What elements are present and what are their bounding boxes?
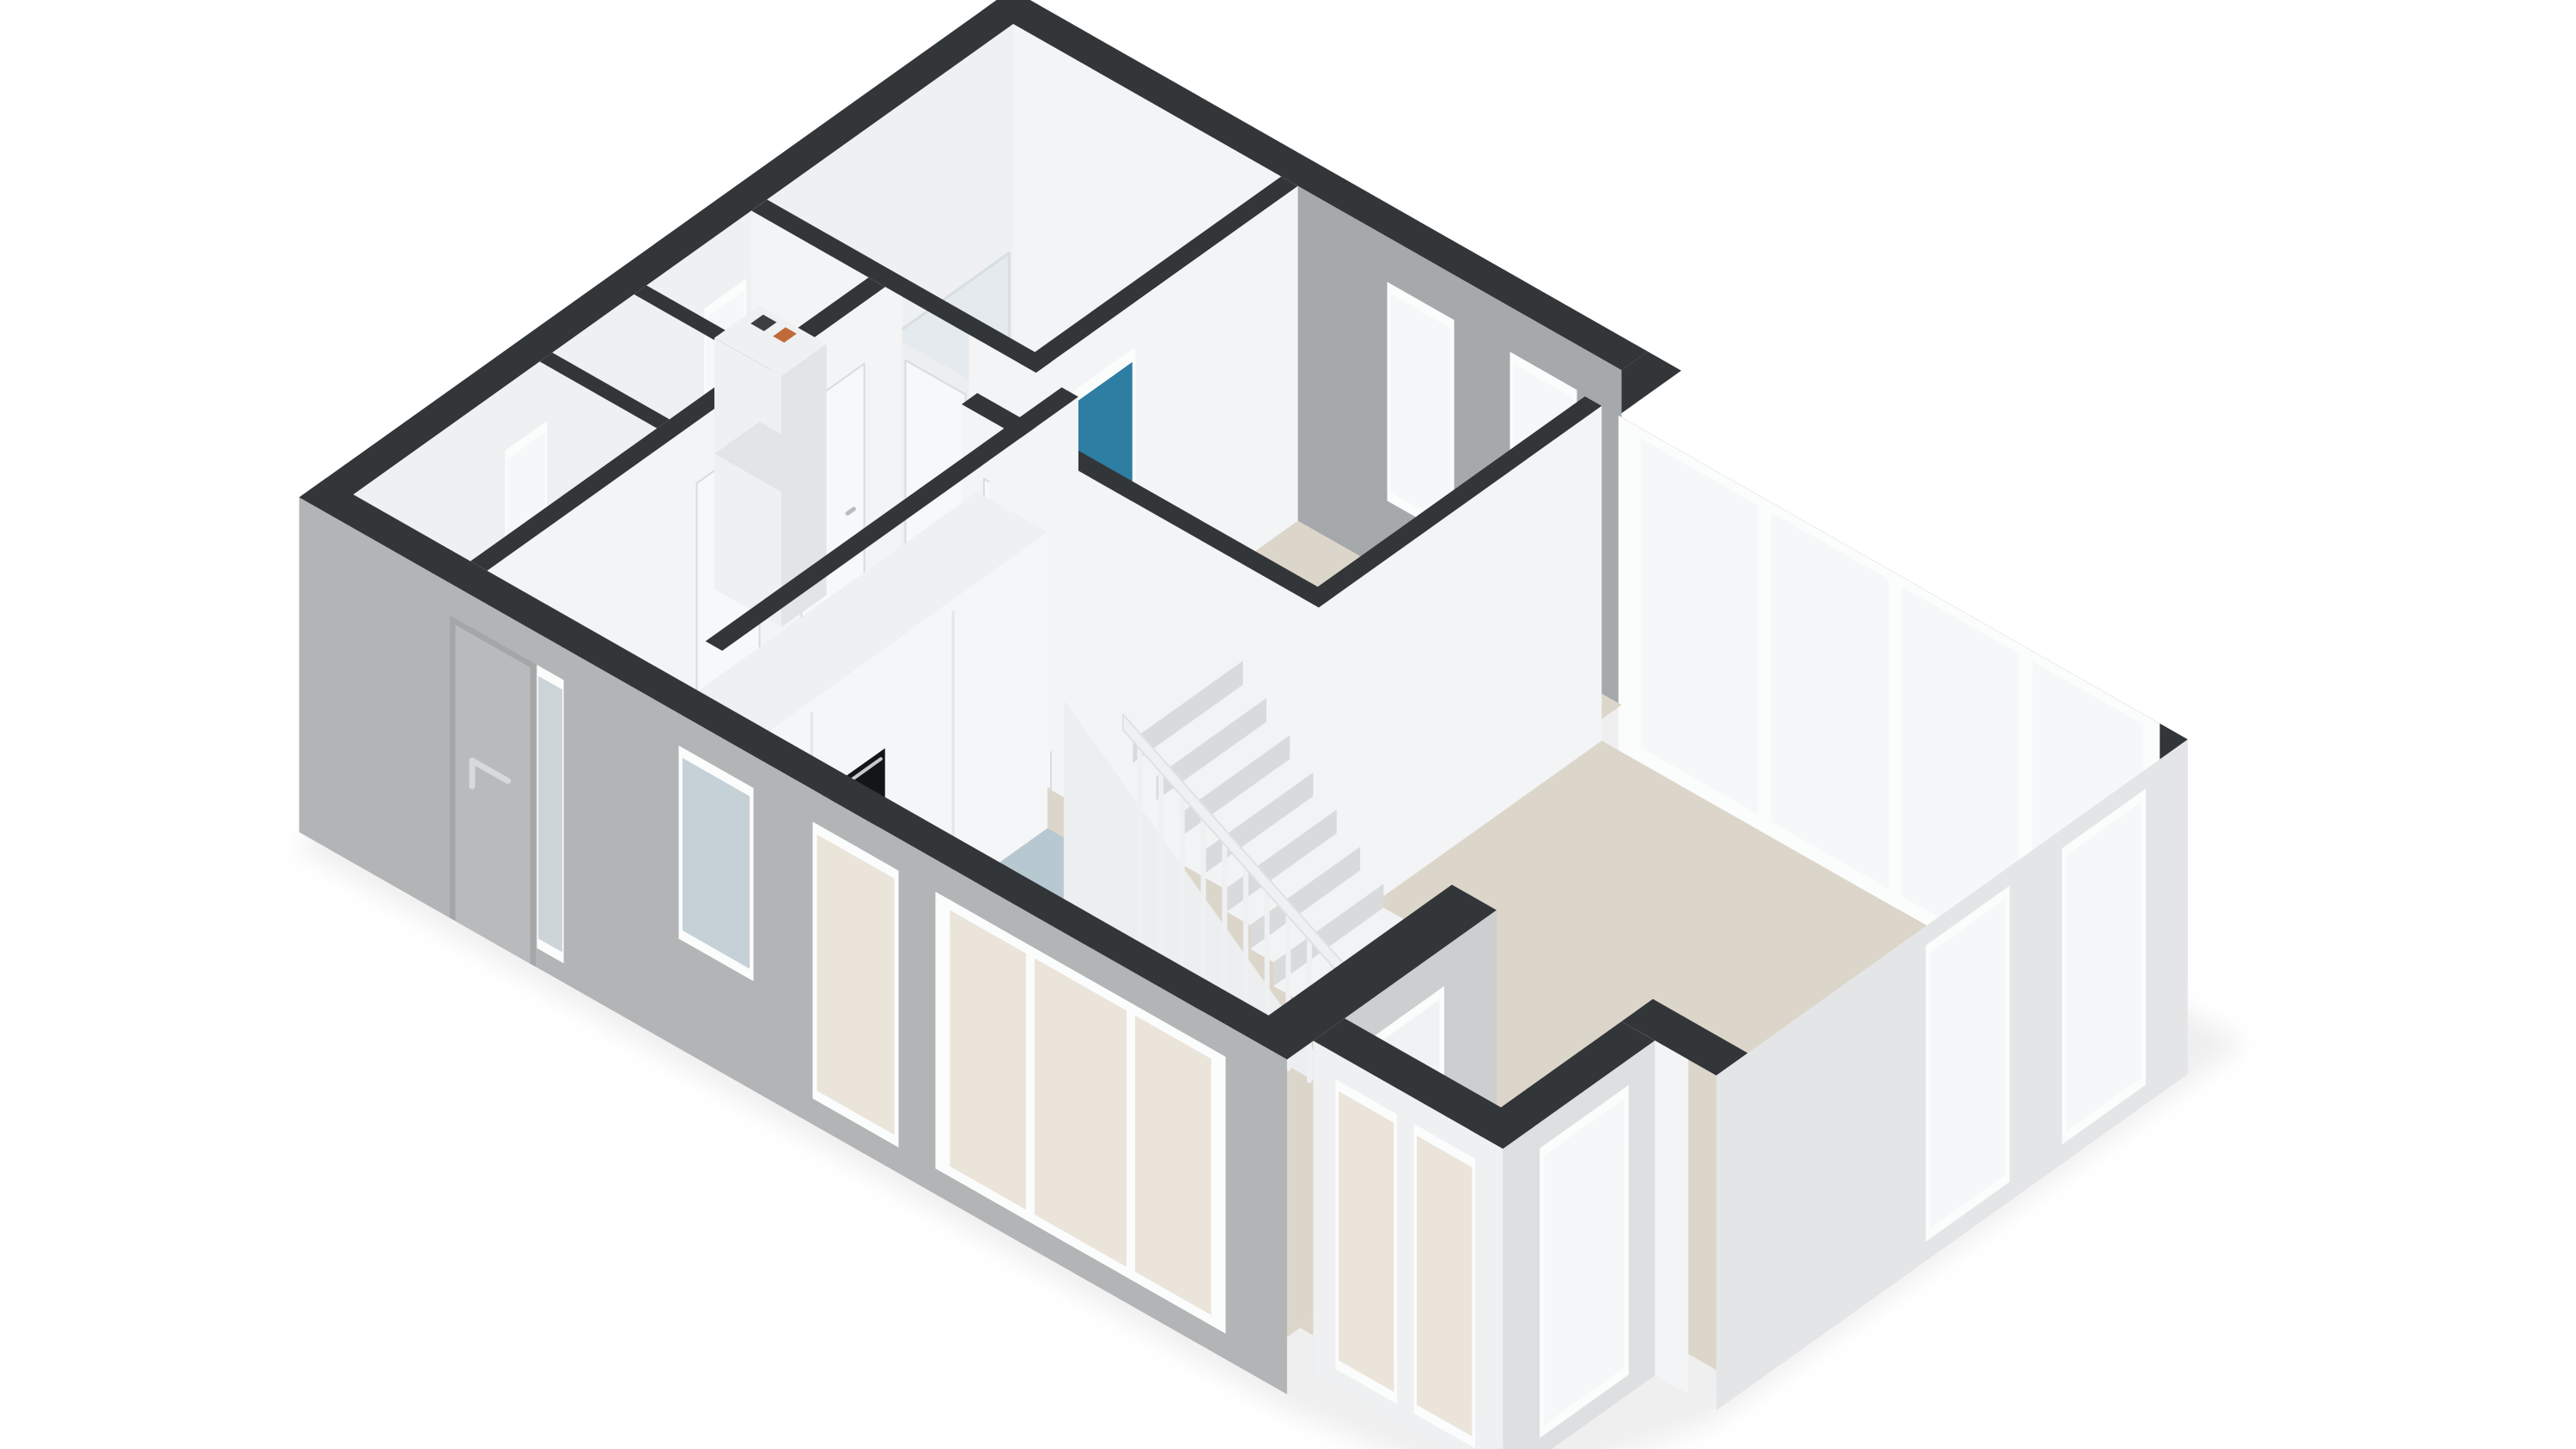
front-door (455, 625, 530, 964)
window-living-east-2-glass (1930, 899, 2006, 1228)
window-bay-south-1-glass (1339, 1091, 1394, 1391)
window-bedroom-1-glass (1390, 294, 1450, 527)
window-living-east-1-glass (2066, 802, 2142, 1131)
window-dining-southwest-1-glass (817, 834, 894, 1135)
window-bay-south-2-glass (1417, 1136, 1472, 1436)
floorplan-3d-rendering (0, 0, 2576, 1449)
floorplan-page (0, 0, 2576, 1449)
front-door-sidelight-glass (538, 676, 562, 952)
window-bay-east-glass (1544, 1099, 1624, 1425)
